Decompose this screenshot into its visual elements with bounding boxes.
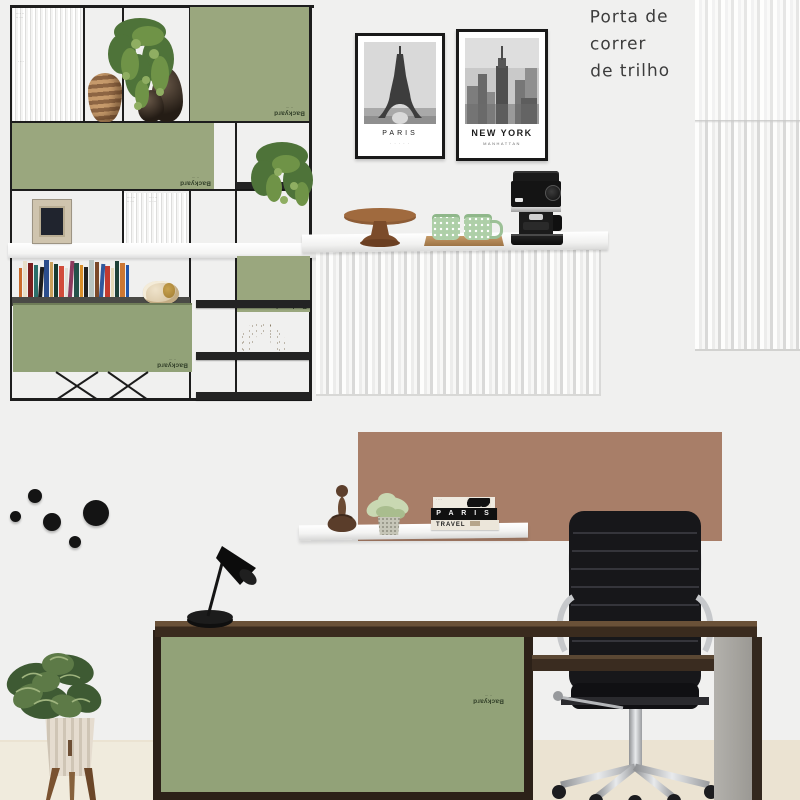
annotation-line: correr [590, 31, 705, 59]
steam-wand [553, 215, 562, 231]
book-cover-art [467, 498, 491, 507]
swatch-name: Backyard [180, 180, 211, 187]
potted-peperomia-plant[interactable] [0, 640, 120, 800]
shelf-board [196, 352, 310, 360]
frame-bar [10, 5, 12, 401]
shelf-board [196, 392, 310, 400]
cross-legs [48, 370, 158, 402]
office-chair[interactable] [545, 505, 725, 800]
room-divider-shelving[interactable]: ···· ·· ·· ··· · ··· Backyard ·· ··· Bac… [8, 4, 320, 404]
annotation-line: de trilho [590, 58, 705, 86]
button-light [515, 198, 523, 202]
wall-hook-dot[interactable] [10, 511, 21, 522]
pot-stand [46, 768, 98, 800]
wood-figurine[interactable] [318, 482, 364, 536]
sliding-door-panel[interactable] [695, 0, 800, 351]
fluted-sideboard[interactable] [316, 250, 601, 396]
espresso-machine[interactable] [511, 171, 563, 245]
pot-notch [68, 740, 72, 756]
green-mug [464, 214, 492, 240]
book-spine [115, 261, 119, 302]
cup-area [523, 222, 549, 230]
art-book: · ··· [433, 497, 495, 508]
sliding-door-seam [695, 120, 800, 123]
poster-subtitle: · · · · · [358, 141, 442, 146]
poster-title: PARIS [358, 130, 442, 137]
tray-with-mugs[interactable] [424, 212, 504, 248]
swatch-code-text: ···· ·· ·· ··· [149, 196, 157, 205]
wall-hook-dot[interactable] [28, 489, 42, 503]
succulent-plant[interactable] [364, 490, 410, 540]
handwritten-annotation[interactable]: Porta de correr de trilho [590, 3, 706, 86]
wall-hook-dot[interactable] [69, 536, 81, 548]
brew-knob [545, 185, 561, 201]
wall-hook-dot[interactable] [43, 513, 61, 531]
book-micro-text: · ··· [436, 498, 442, 502]
paris-book: P A R I S [431, 508, 497, 520]
swatch-name: Backyard [157, 362, 188, 369]
new-york-poster[interactable]: NEW YORK MANHATTAN [456, 29, 548, 161]
plant-leaves [0, 640, 120, 740]
new-york-photo [465, 38, 539, 124]
arch-vase-opening [252, 334, 272, 352]
sliding-door-upper-leaf [695, 0, 800, 120]
poster-title: NEW YORK [459, 128, 545, 138]
shelf-board [196, 300, 310, 308]
swatch-name: Backyard [473, 698, 504, 705]
travel-book: TRAVEL [431, 520, 499, 530]
book-spine [95, 262, 98, 302]
frame-bar [83, 5, 85, 125]
book-row[interactable] [19, 258, 129, 302]
paris-photo [364, 42, 436, 124]
annotation-line: Porta de [590, 3, 705, 31]
paint-swatch-backyard[interactable]: Backyard ·· ··· [190, 7, 309, 121]
swatch-name: Backyard [274, 110, 305, 117]
wood-cake-stand[interactable] [341, 205, 419, 247]
book-spine [23, 261, 27, 302]
knot-decor-object[interactable] [143, 281, 179, 305]
desk-front-panel[interactable]: Backyard ·· ··· [160, 637, 526, 797]
swatch-code-text: ···· ·· ·· ··· [16, 12, 24, 21]
cup-warmer-top [513, 171, 559, 181]
green-cabinet-front[interactable]: Backyard ·· ··· [13, 303, 192, 372]
desk-lamp[interactable] [180, 540, 260, 630]
speckled-pot [377, 517, 401, 535]
poster-subtitle: MANHATTAN [459, 141, 545, 146]
group-head-area [519, 212, 553, 234]
book-spine [50, 262, 53, 302]
paris-poster[interactable]: PARIS · · · · · [355, 33, 445, 159]
moodboard-canvas: Porta de correr de trilho ···· ·· ·· ···… [0, 0, 800, 800]
wall-hook-dot[interactable] [83, 500, 109, 526]
book-stack[interactable]: · ··· P A R I S TRAVEL [431, 497, 497, 530]
ornate-picture-frame[interactable] [33, 200, 71, 243]
book-spine-mark [470, 521, 480, 526]
swatch-code-text: · ··· [18, 60, 24, 64]
book-spine [89, 260, 94, 302]
swatch-code-text: ···· ·· ·· ··· [127, 196, 135, 205]
arch-terrazzo-vase[interactable] [239, 322, 285, 352]
fluted-insert-panel: ···· ·· ·· ··· · ··· [13, 8, 83, 121]
hanging-ivy-plant[interactable] [240, 136, 318, 212]
mug-handle [490, 220, 503, 239]
fluted-insert-panel: ···· ·· ·· ··· ···· ·· ·· ··· [124, 193, 189, 243]
drip-tray [511, 234, 563, 245]
paint-swatch-backyard[interactable]: Backyard ·· ··· [12, 123, 214, 189]
desk-side-leg [714, 637, 752, 800]
green-mug [432, 214, 460, 240]
desk-bottom-edge [157, 792, 529, 800]
desk-side-leg-edge [752, 637, 762, 800]
desk-edge [153, 630, 161, 800]
hanging-ivy-plant[interactable] [100, 14, 186, 114]
portafilter [529, 214, 543, 220]
